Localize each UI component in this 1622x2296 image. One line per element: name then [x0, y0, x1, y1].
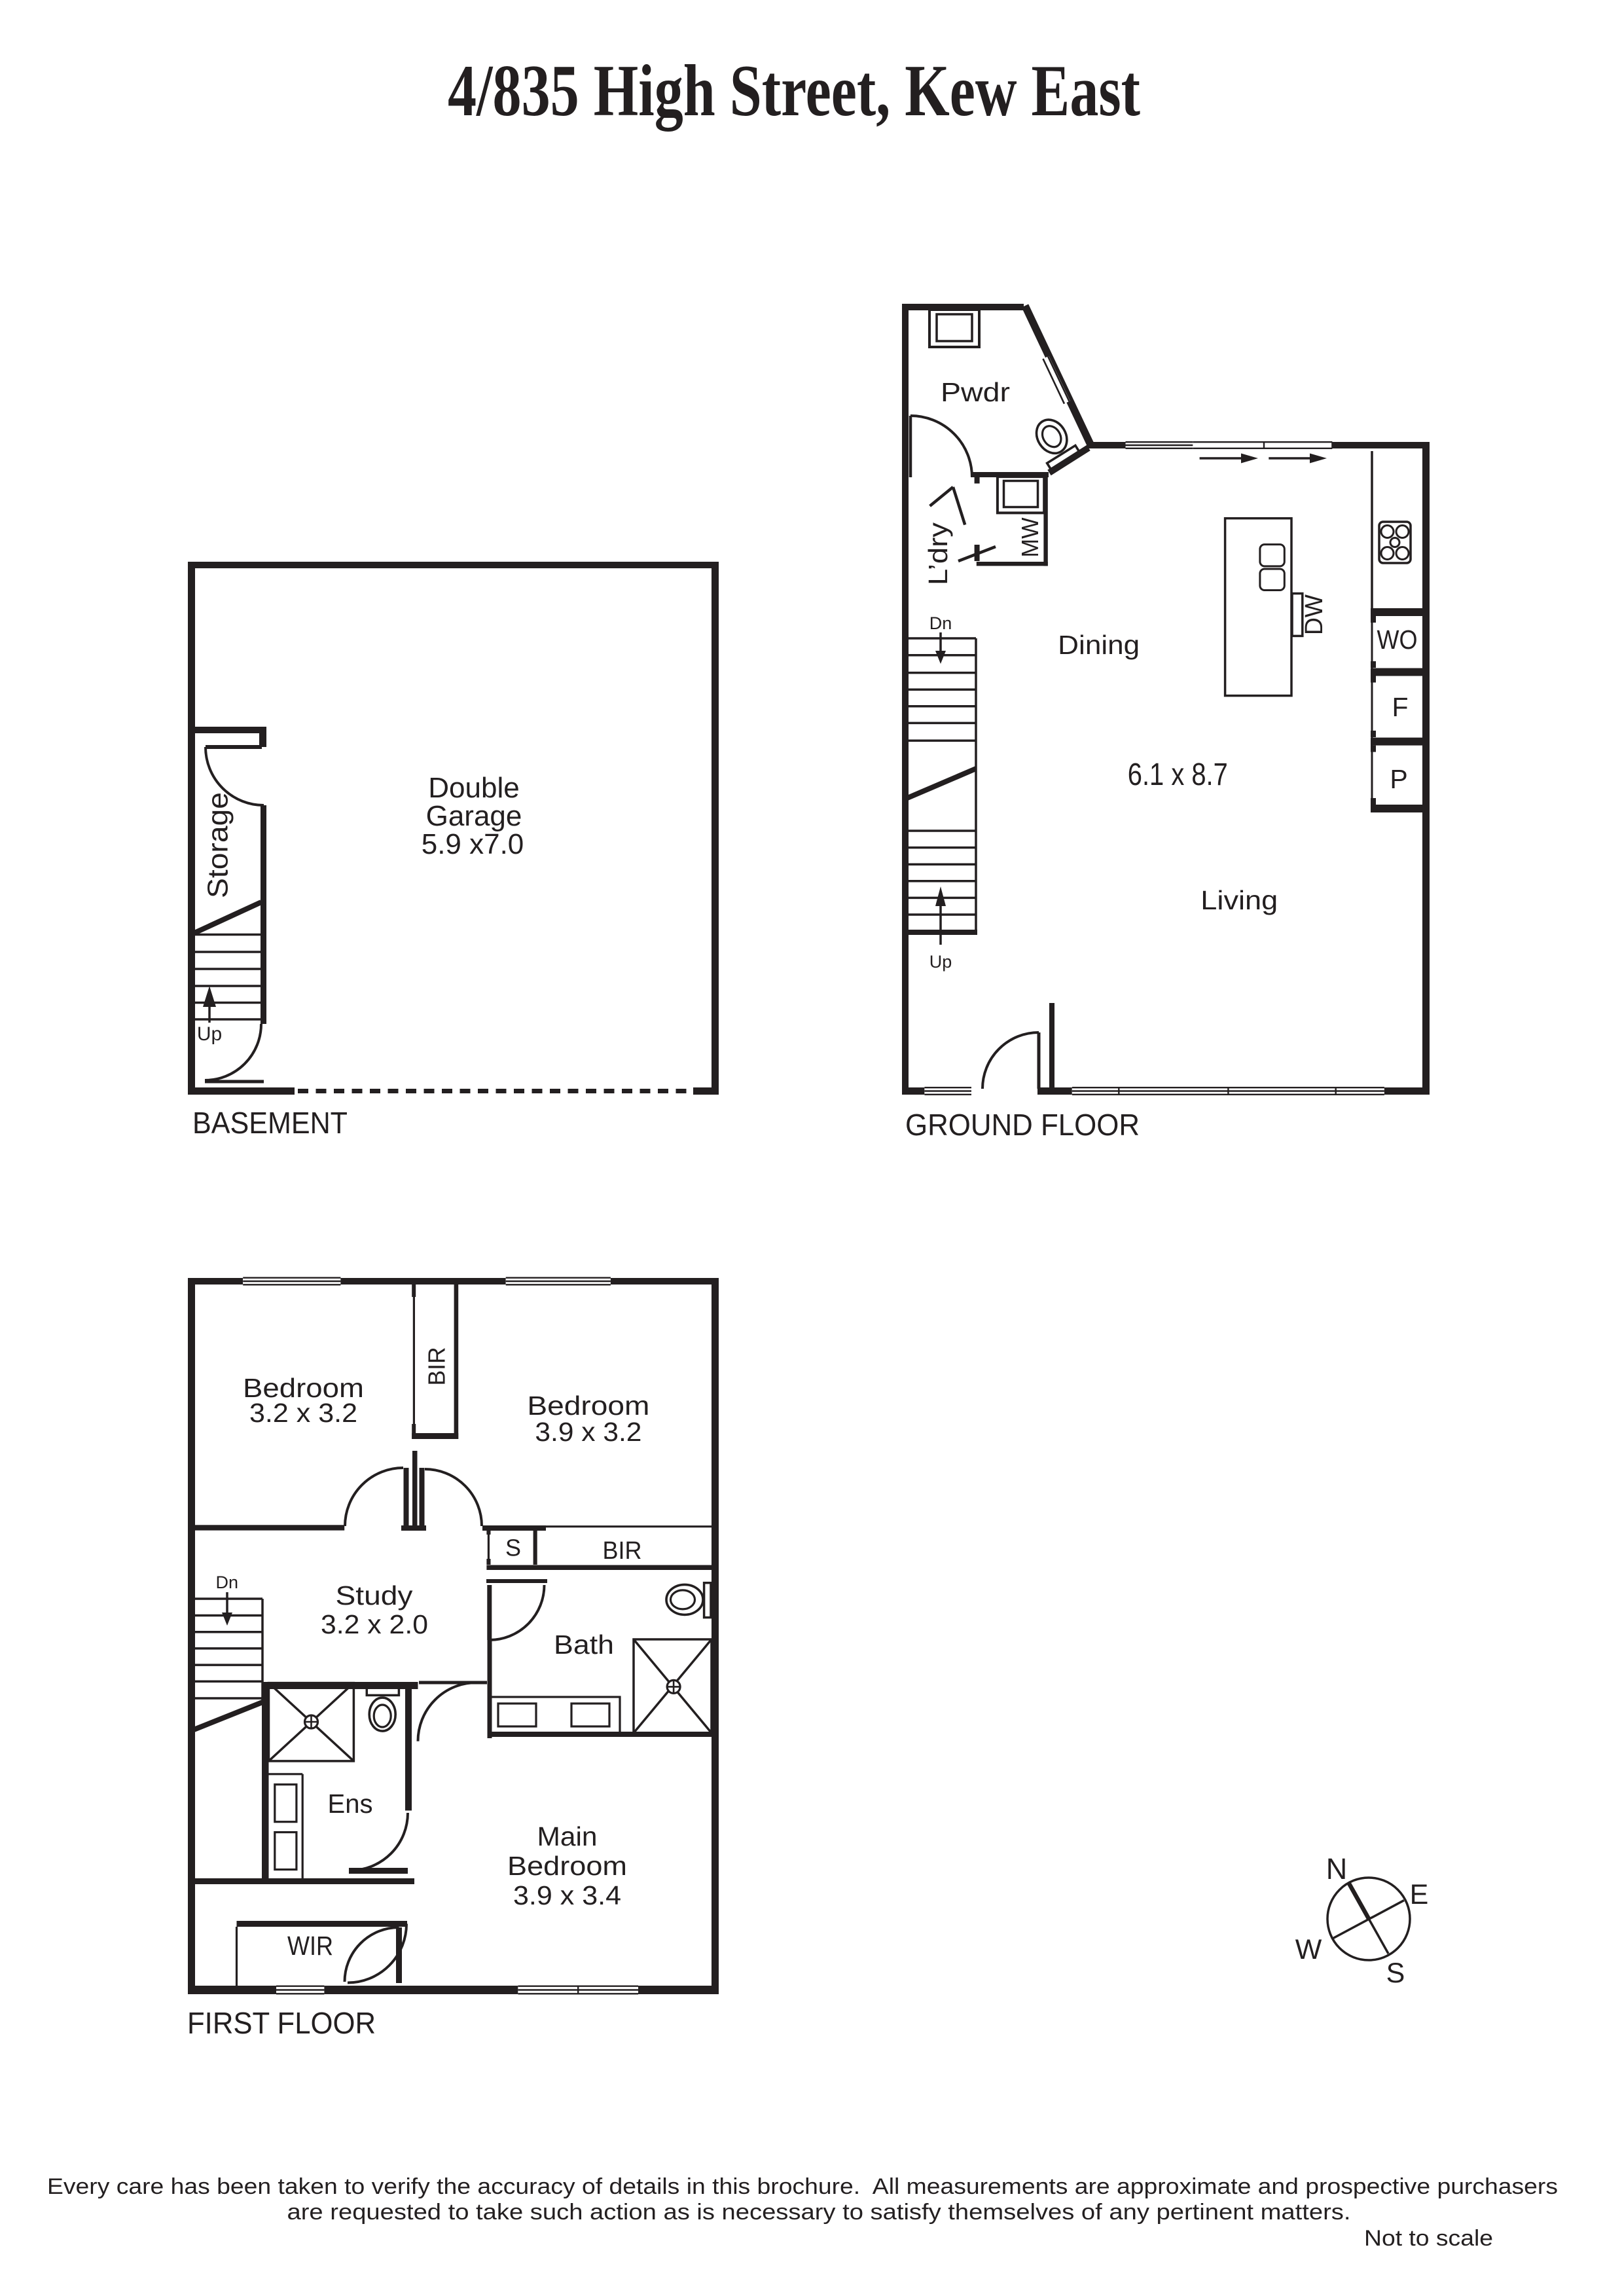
- svg-text:Storage: Storage: [202, 792, 234, 898]
- svg-text:BIR: BIR: [424, 1347, 450, 1386]
- svg-text:N: N: [1326, 1852, 1348, 1886]
- svg-text:S: S: [505, 1535, 521, 1561]
- svg-text:W: W: [1295, 1934, 1322, 1965]
- svg-text:Bath: Bath: [554, 1630, 614, 1660]
- svg-text:E: E: [1410, 1879, 1429, 1910]
- svg-text:Pwdr: Pwdr: [941, 377, 1010, 407]
- svg-text:Dining: Dining: [1058, 630, 1140, 660]
- svg-text:WO: WO: [1377, 625, 1418, 655]
- svg-text:Every care has been taken to v: Every care has been taken to verify the …: [47, 2174, 1558, 2199]
- svg-text:5.9 x7.0: 5.9 x7.0: [422, 828, 524, 860]
- svg-text:Main: Main: [537, 1821, 598, 1851]
- svg-text:BIR: BIR: [603, 1537, 642, 1565]
- svg-text:Living: Living: [1200, 885, 1278, 915]
- svg-text:F: F: [1392, 692, 1408, 722]
- svg-text:Dn: Dn: [929, 613, 952, 633]
- svg-text:Not to scale: Not to scale: [1364, 2226, 1493, 2251]
- svg-text:FIRST FLOOR: FIRST FLOOR: [187, 2006, 376, 2040]
- svg-text:3.9 x 3.2: 3.9 x 3.2: [535, 1417, 641, 1447]
- svg-text:Up: Up: [929, 952, 952, 972]
- svg-text:DW: DW: [1301, 594, 1328, 635]
- svg-text:Garage: Garage: [426, 800, 522, 832]
- svg-text:3.2 x 3.2: 3.2 x 3.2: [249, 1398, 357, 1428]
- svg-text:Bedroom: Bedroom: [507, 1851, 627, 1881]
- svg-text:4/835 High Street, Kew East: 4/835 High Street, Kew East: [448, 50, 1140, 132]
- svg-text:3.2 x 2.0: 3.2 x 2.0: [321, 1609, 428, 1639]
- svg-text:Up: Up: [197, 1023, 222, 1045]
- svg-text:P: P: [1390, 764, 1407, 794]
- svg-text:3.9 x 3.4: 3.9 x 3.4: [513, 1880, 621, 1910]
- svg-text:Study: Study: [336, 1580, 414, 1611]
- svg-text:Ens: Ens: [328, 1789, 373, 1819]
- svg-text:WIR: WIR: [287, 1931, 333, 1961]
- svg-text:Double: Double: [428, 772, 519, 804]
- svg-text:S: S: [1386, 1958, 1405, 1989]
- svg-text:Dn: Dn: [216, 1573, 239, 1592]
- svg-text:GROUND FLOOR: GROUND FLOOR: [905, 1108, 1140, 1142]
- svg-text:MW: MW: [1017, 517, 1043, 557]
- svg-text:BASEMENT: BASEMENT: [192, 1106, 348, 1140]
- svg-text:L’dry: L’dry: [923, 522, 953, 585]
- svg-text:6.1 x 8.7: 6.1 x 8.7: [1128, 757, 1228, 792]
- svg-text:are requested to take such act: are requested to take such action as is …: [287, 2200, 1351, 2225]
